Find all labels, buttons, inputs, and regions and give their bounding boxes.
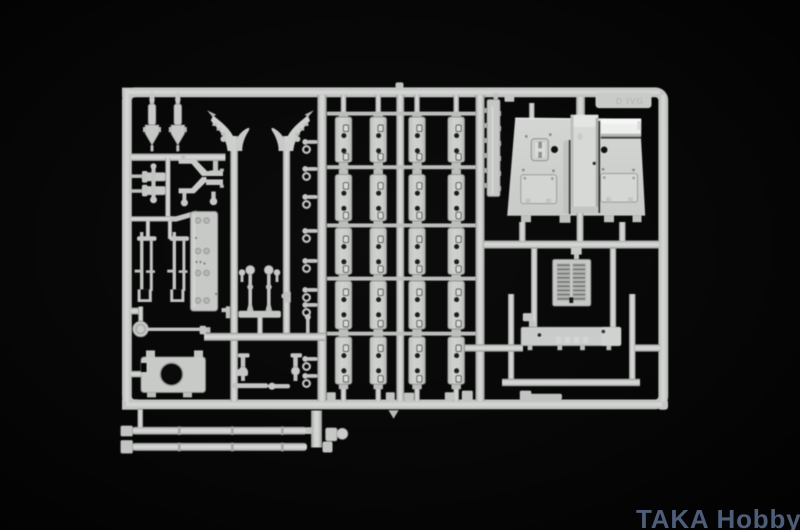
svg-text:D IVG: D IVG [616, 96, 644, 106]
